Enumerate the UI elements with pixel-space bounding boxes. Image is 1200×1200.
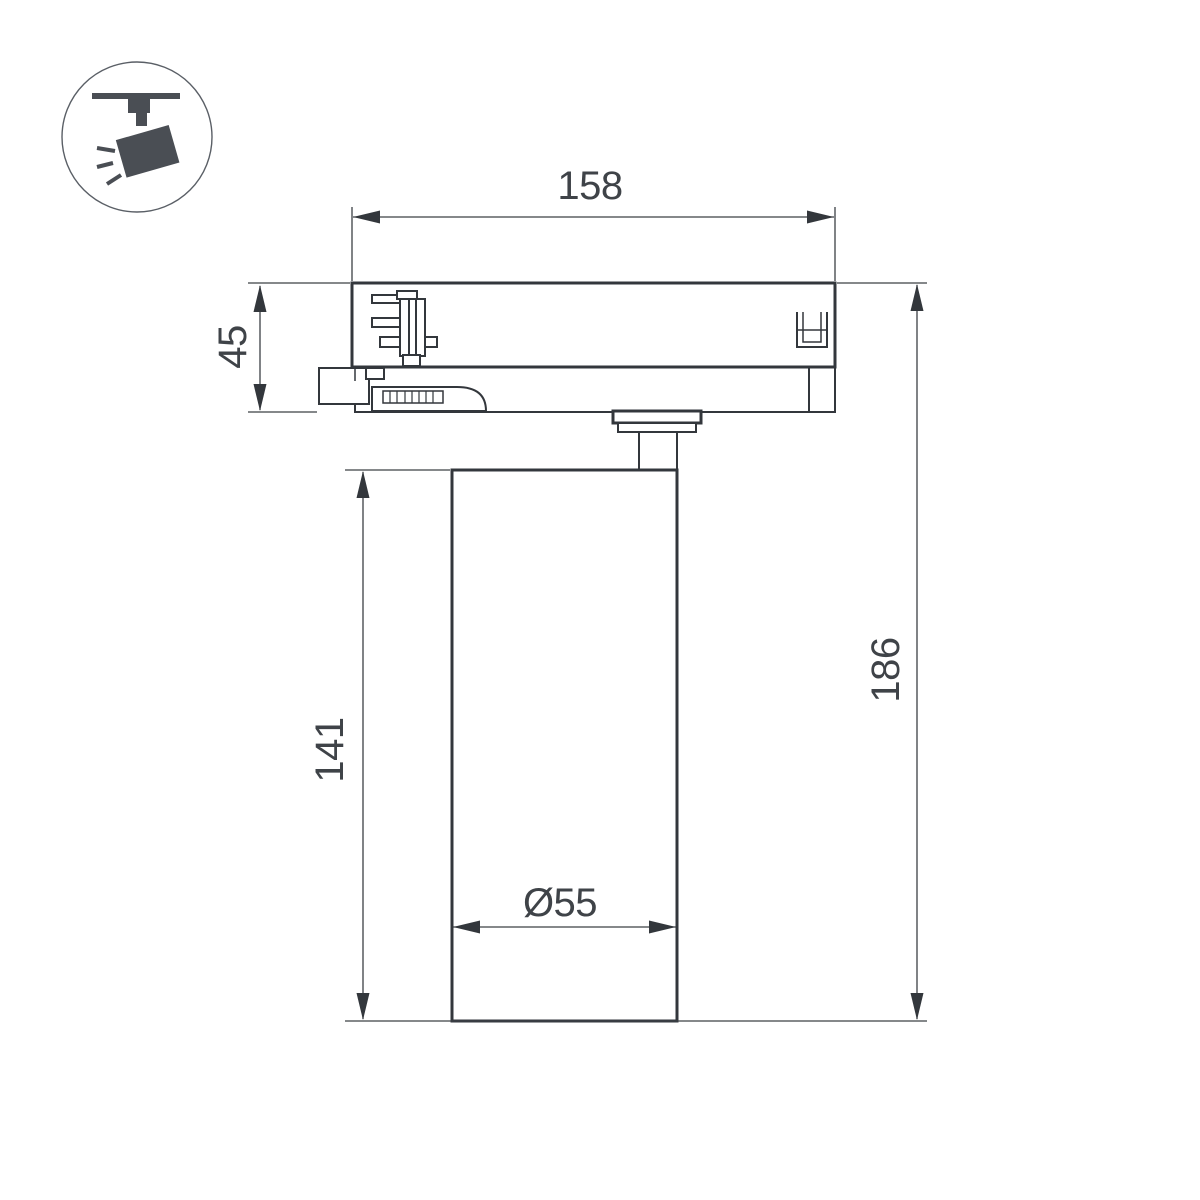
arrowhead-up — [911, 284, 924, 311]
icon-stem-lower — [136, 112, 147, 126]
mount-step-lower — [618, 423, 696, 432]
dim-label-body-height: 141 — [308, 717, 352, 782]
icon-lamp-head — [116, 125, 180, 178]
mount-step-upper — [613, 411, 701, 423]
arrowhead-down — [357, 993, 370, 1020]
dim-label-adapter-height: 45 — [211, 325, 255, 369]
contact-prong-top — [372, 295, 400, 303]
spotlight-icon — [62, 62, 212, 212]
drawing-canvas: 158 45 141 — [0, 0, 1200, 1200]
contact-post-right-wall — [416, 299, 425, 356]
contact-prong-bottom — [380, 337, 400, 347]
arrowhead-right — [807, 211, 834, 224]
dimension-total-height: 186 — [837, 283, 927, 1020]
latch-box — [319, 368, 369, 404]
dim-label-total-height: 186 — [864, 637, 908, 702]
contact-foot — [403, 355, 420, 366]
contact-prong-middle — [372, 318, 400, 327]
technical-drawing-page: 158 45 141 — [0, 0, 1200, 1200]
arrowhead-down — [254, 384, 267, 411]
latch-grip-ribs — [390, 391, 433, 403]
icon-light-ray-1 — [97, 148, 115, 151]
arrowhead-down — [911, 993, 924, 1020]
dim-label-body-diameter: Ø55 — [523, 881, 597, 925]
contact-post-left-wall — [400, 299, 409, 356]
contact-crossbar — [425, 337, 437, 347]
track-adapter — [319, 283, 835, 412]
dimension-body-height: 141 — [308, 470, 450, 1020]
dimension-adapter-width: 158 — [352, 164, 835, 281]
lamp-cylinder-body — [452, 470, 677, 1021]
dim-label-adapter-width: 158 — [557, 164, 622, 208]
icon-light-ray-2 — [97, 163, 113, 167]
contact-post-cap — [397, 291, 417, 299]
icon-light-ray-3 — [107, 175, 121, 184]
icon-stem-upper — [128, 98, 150, 113]
latch-clip — [366, 368, 384, 379]
arrowhead-left — [353, 211, 380, 224]
arrowhead-up — [357, 471, 370, 498]
arrowhead-up — [254, 285, 267, 312]
